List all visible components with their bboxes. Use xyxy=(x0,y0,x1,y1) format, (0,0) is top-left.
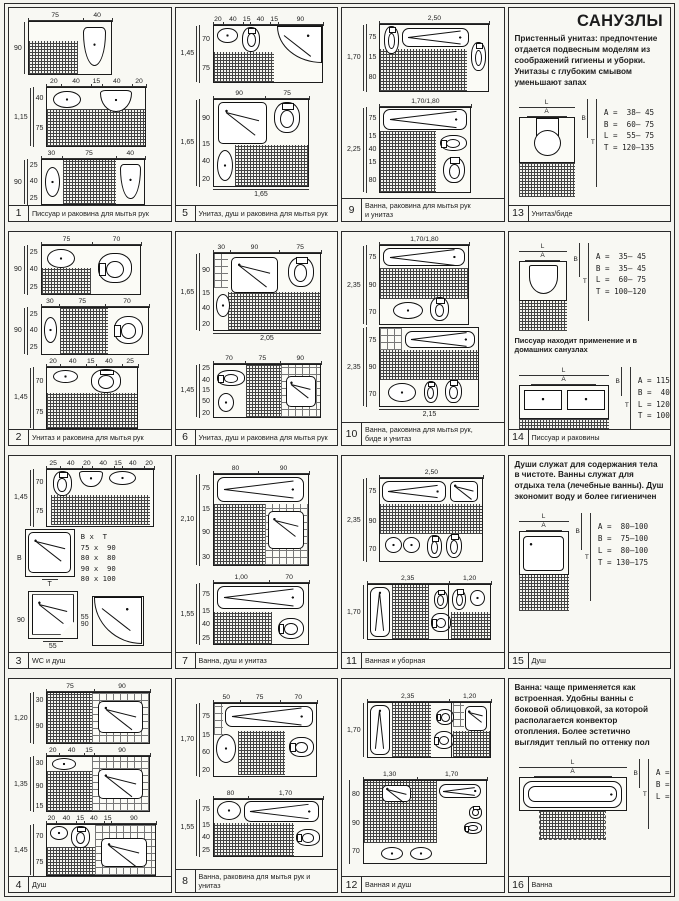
panel-caption: Унитаз/биде xyxy=(529,206,576,221)
dimension-A: A xyxy=(534,768,612,777)
tiled-floor-area xyxy=(235,145,308,186)
dimension-label: 40 xyxy=(200,151,210,173)
dimension-label: 75 xyxy=(200,799,210,821)
washbasin-icon xyxy=(53,91,80,108)
dimension-label: 90 xyxy=(14,327,22,334)
dimension-segments: 254025 xyxy=(27,245,38,295)
bathtub-icon xyxy=(217,477,304,502)
dimension-label: 90 xyxy=(14,179,22,186)
shower-icon xyxy=(382,785,411,801)
dimension-label: 15 xyxy=(243,15,251,25)
dimension-B: B xyxy=(574,243,580,277)
panel-caption: Унитаз и раковина для мытья рук xyxy=(29,430,147,445)
dimension-label: 75 xyxy=(200,474,210,504)
dimension-L: L xyxy=(519,243,567,252)
floor-plan-diagram: 2,357590702,15 xyxy=(347,327,501,419)
dimension-label: 75 xyxy=(34,110,44,147)
toilet-icon xyxy=(471,42,486,71)
dimension-total: 1,55 xyxy=(181,799,198,857)
floor-plan-room xyxy=(213,474,309,566)
dimension-label: 25 xyxy=(46,459,60,469)
plan-main: 2,351,20 xyxy=(367,692,491,758)
dimension-label: 15 xyxy=(200,820,210,830)
dimension-label: 90 xyxy=(367,506,377,537)
dimension-total: 1,70 xyxy=(347,584,364,640)
floor-plan-diagram: 1,2030907590 xyxy=(14,682,168,744)
dimension-label: 75 xyxy=(41,235,93,245)
plan-main: 2,50 xyxy=(379,14,489,92)
dimension-label: B xyxy=(574,256,578,263)
dimension-label: B xyxy=(576,528,580,535)
elevation-diagram: LABTA = 80–100 B = 75–100 L = 80–100 T =… xyxy=(519,513,665,611)
shower-icon xyxy=(450,481,479,502)
dimension-top-row: 1,301,70 xyxy=(363,770,487,780)
dimension-line xyxy=(30,693,31,743)
caption-line: Ванная и душ xyxy=(365,880,411,889)
dimension-label: 75 xyxy=(367,327,377,353)
dimension-segments: 4075 xyxy=(33,87,44,147)
floor-plan-room xyxy=(213,364,321,418)
floor-plan-diagram: 1,55751540251,0070 xyxy=(181,573,335,645)
dimension-label: 1,30 xyxy=(363,770,417,780)
washbasin-icon xyxy=(385,537,402,553)
dimension-label: 50 xyxy=(200,395,210,408)
diagram-area: 902540257570902540253075701,457075204015… xyxy=(9,232,171,429)
panel-caption-bar: 10Ванна, раковина для мытья рук,биде и у… xyxy=(342,422,504,445)
tiled-floor-area xyxy=(47,847,95,875)
floor-plan-diagram: 1,452540155020707590 xyxy=(181,354,335,418)
dimension-label: B xyxy=(582,115,586,122)
dimension-T: T xyxy=(643,759,649,829)
plan-main: 3090752,05 xyxy=(213,243,321,343)
washbasin-icon xyxy=(393,302,423,319)
floor-plan-diagram: 8090701,301,70 xyxy=(347,770,501,864)
panel-caption: Писсуар и раковины xyxy=(529,430,603,445)
floor-plan-diagram: 1,1540752040154020 xyxy=(14,77,168,147)
tiled-floor-area xyxy=(214,612,272,644)
dimension-line xyxy=(196,584,197,644)
dimension-label: 40 xyxy=(59,746,84,756)
tiled-floor-area xyxy=(451,612,490,639)
dimension-T: T xyxy=(583,243,589,321)
caption-line: Унитаз, душ и раковина для мытья рук xyxy=(199,209,328,218)
toilet-icon xyxy=(217,370,245,386)
floor-plan-diagram: 1,659015402090751,65 xyxy=(181,89,335,199)
dimension-label: 70 xyxy=(34,469,44,497)
dimension-top-row: 2,50 xyxy=(379,468,483,478)
floor-plan-room xyxy=(379,478,483,562)
shower-icon xyxy=(101,838,146,867)
dimension-label: 80 xyxy=(367,63,377,92)
dimension-top-row: 307570 xyxy=(41,297,149,307)
size-table: A = 80–100 B = 75–100 L = 80–100 T = 130… xyxy=(598,521,648,568)
diagram-area: 2,357590701,70/1,802,357590702,15 xyxy=(342,232,504,422)
dimension-label: 1,45 xyxy=(181,387,195,394)
dimension-label: 1,20 xyxy=(14,715,28,722)
floor-plan-room xyxy=(379,107,471,193)
floor-plan-room xyxy=(213,253,321,331)
toilet-icon xyxy=(278,618,304,640)
dimension-label: 40 xyxy=(61,77,91,87)
panel-10: 2,357590701,70/1,802,357590702,1510Ванна… xyxy=(341,231,505,446)
page-title: САНУЗЛЫ xyxy=(515,12,664,31)
dimension-line xyxy=(196,254,197,330)
dimension-column: 1,5575154025 xyxy=(181,789,210,857)
dimension-label: 2,35 xyxy=(347,364,361,371)
dimension-label: 1,65 xyxy=(181,289,195,296)
page-frame: 9075401,1540752040154020902540253075401П… xyxy=(4,3,675,897)
diagram-area: 1,4570752040154015901,659015402090751,65 xyxy=(176,8,338,205)
dimension-label: 2,50 xyxy=(379,468,483,478)
dimension-label: 90 xyxy=(78,621,92,628)
tiled-floor-area xyxy=(47,771,92,811)
dimension-line xyxy=(24,246,25,294)
shower-icon xyxy=(32,594,74,634)
dimension-label: 40 xyxy=(116,149,145,159)
toilet-icon xyxy=(91,369,122,393)
panel-caption: Ванная и душ xyxy=(362,877,414,892)
dimension-label: 25 xyxy=(200,364,210,374)
plan-main: 1,70/1,80 xyxy=(379,97,471,193)
dimension-label: 25 xyxy=(122,357,138,367)
dimension-label: 40 xyxy=(92,459,114,469)
washbasin-icon xyxy=(216,734,236,763)
dimension-line xyxy=(621,367,622,396)
dimension-line xyxy=(587,99,588,138)
panel-number: 5 xyxy=(176,206,196,221)
floor-plan-room xyxy=(213,25,323,83)
diagram-area: 9075401,154075204015402090254025307540 xyxy=(9,8,171,205)
dimension-segments: 75156020 xyxy=(199,703,210,777)
dimension-label: 20 xyxy=(46,814,56,824)
dimension-line xyxy=(363,25,364,91)
dimension-label: 1,70 xyxy=(347,727,361,734)
dimension-bottom: 1,65 xyxy=(213,189,309,199)
elevation-diagram: LABTA = 115–145 B = 40– 55 L = 120–175 T… xyxy=(519,367,665,429)
dimension-label: 30 xyxy=(34,756,44,771)
dimension-line xyxy=(363,703,364,757)
dimension-A: A xyxy=(526,522,562,531)
dimension-label: 90 xyxy=(230,243,280,253)
dimension-label: 15 xyxy=(86,357,96,367)
panel-3: 1,45707525402040154020BTB x T 75 x 90 80… xyxy=(8,455,172,670)
plan-main: 307570 xyxy=(41,297,149,355)
panel-number: 7 xyxy=(176,653,196,668)
tile-grid-area xyxy=(214,254,228,287)
dimension-label: 15 xyxy=(200,288,210,300)
dimension-label: 70 xyxy=(34,367,44,397)
dimension-line xyxy=(30,368,31,428)
dimension-B: B xyxy=(634,759,640,788)
plan-main: 90751,65 xyxy=(213,89,309,199)
washbasin-icon xyxy=(218,393,234,412)
floor-plan-diagram: 907540 xyxy=(14,11,168,75)
dimension-total: 1,20 xyxy=(14,692,31,744)
dimension-label: 75 xyxy=(200,583,210,606)
dimension-total: 1,15 xyxy=(14,87,31,147)
dimension-label: 15 xyxy=(200,139,210,151)
plan-main: 2,50 xyxy=(379,468,483,562)
panel-number: 13 xyxy=(509,206,529,221)
dimension-label: 40 xyxy=(60,357,86,367)
dimension-label: 25 xyxy=(200,845,210,857)
toilet-icon xyxy=(464,822,482,833)
floor-plan-diagram: 90254025307540 xyxy=(14,149,168,205)
dimension-label: 1,70 xyxy=(181,736,195,743)
plan-main: 507570 xyxy=(213,693,317,777)
panel-5: 1,4570752040154015901,659015402090751,65… xyxy=(175,7,339,222)
panel-caption-bar: 9Ванна, раковина для мытья руки унитаз xyxy=(342,198,504,221)
dimension-line xyxy=(590,513,591,601)
panel-number: 11 xyxy=(342,653,362,668)
panel-13: САНУЗЛЫПристенный унитаз: предпочтение о… xyxy=(508,7,672,222)
dimension-total: 1,45 xyxy=(181,364,198,418)
toilet-icon xyxy=(71,826,89,848)
floor-plan-room xyxy=(379,245,469,325)
panel-7: 2,107515903080901,55751540251,00707Ванна… xyxy=(175,455,339,670)
tile-grid-area xyxy=(214,704,223,736)
dimension-label: 70 xyxy=(367,537,377,563)
floor-plan-diagram: 902540257570 xyxy=(14,235,168,295)
dimension-L: L xyxy=(519,513,569,522)
tiled-floor-area xyxy=(519,163,575,197)
dimension-label: 20 xyxy=(200,408,210,418)
dimension-line xyxy=(581,513,582,550)
dimension-label: 90 xyxy=(258,464,309,474)
plan-main: 1,301,70 xyxy=(363,770,487,864)
floor-plan-diagram: 2,10751590308090 xyxy=(181,464,335,566)
floor-plan-diagram: 1,65901540203090752,05 xyxy=(181,243,335,343)
floor-plan-diagram: 2,357590702,50 xyxy=(347,468,501,562)
dimension-label: 40 xyxy=(28,321,38,340)
floor-plan-room xyxy=(46,469,154,527)
dimension-line xyxy=(30,825,31,875)
panel-number: 2 xyxy=(9,430,29,445)
dimension-label: 40 xyxy=(223,15,243,25)
dimension-label: 70 xyxy=(280,693,317,703)
size-table: B x T 75 x 90 80 x 80 90 x 90 80 x 100 xyxy=(81,532,116,585)
dimension-top-row: 2,351,20 xyxy=(367,692,491,702)
caption-line: Писсуар и раковины xyxy=(532,433,600,442)
plan-main: 25402040154020 xyxy=(46,459,154,527)
caption-line: Унитаз и раковина для мытья рук xyxy=(32,433,144,442)
floor-plan-diagram: 2,2575154015801,70/1,80 xyxy=(347,97,501,193)
dimension-total: 1,35 xyxy=(14,756,31,812)
dimension-total: 1,45 xyxy=(181,25,198,83)
diagram-area: 1,707515802,502,2575154015801,70/1,80 xyxy=(342,8,504,198)
dimension-B: B xyxy=(576,513,582,550)
caption-line: Унитаз/биде xyxy=(532,209,573,218)
toilet-icon xyxy=(469,806,482,819)
washbasin-icon xyxy=(45,167,60,197)
dimension-line xyxy=(363,328,364,406)
toilet-icon xyxy=(288,257,313,287)
dimension-top-row: 204015401590 xyxy=(213,15,323,25)
dimension-segments: 309015 xyxy=(33,756,44,812)
floor-plan-room xyxy=(46,756,150,812)
panel-caption: Ванна, раковина для мытья руки унитаз xyxy=(362,199,474,221)
sinks-front-icon xyxy=(519,385,609,419)
washbasin-icon xyxy=(403,537,420,553)
dimension-label: T xyxy=(585,554,589,561)
tiled-floor-area xyxy=(47,393,137,428)
shower-icon xyxy=(98,769,143,799)
plan-main: 1,0070 xyxy=(213,573,309,645)
panel-caption: WC и душ xyxy=(29,653,69,668)
dimension-label: 1,45 xyxy=(14,394,28,401)
dimension-label: 1,70 xyxy=(347,54,361,61)
panel-12: 1,702,351,208090701,301,7012Ванная и душ xyxy=(341,678,505,893)
dimension-label: 20 xyxy=(200,764,210,776)
dimension-label: 90 xyxy=(14,266,22,273)
dimension-top-row: 20401590 xyxy=(46,746,150,756)
dimension-T: T xyxy=(625,367,631,429)
dimension-segments: 254025 xyxy=(27,159,38,205)
panel-14: LABTA = 35– 45 B = 35– 45 L = 60– 75 T =… xyxy=(508,231,672,446)
dimension-label: 40 xyxy=(200,830,210,845)
dimension-label: 25 xyxy=(28,340,38,355)
tiled-floor-area xyxy=(29,41,78,74)
dimension-label: 15 xyxy=(367,157,377,167)
dimension-B: B xyxy=(582,99,588,138)
dimension-segments: 7075 xyxy=(199,25,210,83)
dimension-label: 20 xyxy=(132,77,147,87)
dimension-label: 70 xyxy=(92,235,140,245)
dimension-total: 1,70 xyxy=(181,703,198,777)
panel-caption: Унитаз, душ и раковина для мытья рук xyxy=(196,206,331,221)
shower-icon xyxy=(231,257,278,293)
panel-11: 2,357590702,501,702,351,2011Ванная и убо… xyxy=(341,455,505,670)
dimension-column: 1,457075 xyxy=(14,459,43,527)
dimension-segments: 7075 xyxy=(33,824,44,876)
dimension-segments: 759070 xyxy=(366,478,377,562)
dimension-L: L xyxy=(519,99,575,108)
dimension-column: 1,6590154020 xyxy=(181,243,210,331)
dimension-L: L xyxy=(519,759,627,768)
dimension-top-row: 2040154025 xyxy=(46,357,138,367)
panel-caption-bar: 8Ванна, раковина для мытья рук и унитаз xyxy=(176,869,338,892)
dimension-column: 1,70 xyxy=(347,692,364,758)
dimension-label: 40 xyxy=(28,260,38,280)
panel-number: 14 xyxy=(509,430,529,445)
dimension-label: 75 xyxy=(367,245,377,271)
dimension-label: 90 xyxy=(278,15,323,25)
panel-15: Души служат для содержания тела в чистот… xyxy=(508,455,672,670)
tiled-floor-area xyxy=(214,823,294,855)
dimension-label: 1,65 xyxy=(181,139,195,146)
panel-caption-bar: 15Душ xyxy=(509,652,671,668)
dimension-label: 20 xyxy=(200,173,210,187)
dimension-label: 15 xyxy=(34,801,44,812)
dimension-total: 2,10 xyxy=(181,474,198,566)
panel-caption: Ванна, раковина для мытья рук,биде и уни… xyxy=(362,423,476,445)
dimension-A: A xyxy=(525,252,560,261)
panel-number: 15 xyxy=(509,653,529,668)
plan-main: 707590 xyxy=(213,354,321,418)
dimension-top-row: 1,70/1,80 xyxy=(379,97,471,107)
dimension-line xyxy=(24,160,25,204)
dimension-label: 2,50 xyxy=(379,14,489,24)
urinal-icon xyxy=(83,27,106,65)
dimension-segments: 7075 xyxy=(33,367,44,429)
dimension-label: 70 xyxy=(200,25,210,53)
dimension-label: 15 xyxy=(200,386,210,395)
tiled-floor-area xyxy=(380,504,482,534)
panel-1: 9075401,1540752040154020902540253075401П… xyxy=(8,7,172,222)
size-table: A = 38– 45 B = 60– 75 L = 55– 75 T = 120… xyxy=(604,107,654,154)
dimension-label: 2,35 xyxy=(347,517,361,524)
floor-plan-room xyxy=(367,584,491,640)
dimension-right: BT xyxy=(613,367,631,429)
panel-number: 1 xyxy=(9,206,29,221)
dimension-label: 25 xyxy=(28,280,38,295)
panel-caption-bar: 7Ванна, душ и унитаз xyxy=(176,652,338,668)
dimension-line xyxy=(363,585,364,639)
floor-plan-room xyxy=(46,692,150,744)
corner-showers-diagram: 90555590 xyxy=(14,591,168,651)
elevation-plan: LA xyxy=(519,367,609,429)
dimension-line xyxy=(596,99,597,187)
dimension-label: 1,15 xyxy=(14,114,28,121)
dimension-label: 75 xyxy=(28,11,83,21)
dimension-top-row: 2040154020 xyxy=(46,77,146,87)
dimension-label: 55 xyxy=(78,614,92,621)
dimension-right: BT xyxy=(573,513,591,601)
dimension-label: 75 xyxy=(34,497,44,527)
bathtub-icon xyxy=(244,801,319,821)
panel-caption-bar: 2Унитаз и раковина для мытья рук xyxy=(9,429,171,445)
floor-plan-room xyxy=(41,245,141,295)
tiled-floor-area xyxy=(47,109,145,146)
panel-8: 1,70751560205075701,5575154025801,708Ван… xyxy=(175,678,339,893)
panel-4: 1,20309075901,35309015204015901,45707520… xyxy=(8,678,172,893)
dimension-label: T xyxy=(583,278,587,285)
dimension-label: 30 xyxy=(41,149,63,159)
dimension-label: 50 xyxy=(213,693,240,703)
dimension-segments: 254025 xyxy=(27,307,38,355)
washbasin-icon xyxy=(217,150,233,181)
dimension-label: 1,35 xyxy=(14,781,28,788)
dimension-label: 90 xyxy=(14,617,28,624)
dimension-label: 75 xyxy=(240,693,280,703)
text-content: Души служат для содержания тела в чистот… xyxy=(509,456,671,653)
floor-plan-diagram: 2,357590701,70/1,80 xyxy=(347,235,501,325)
dimension-label: 75 xyxy=(34,850,44,876)
dimension-label: 40 xyxy=(28,173,38,191)
plan-main: 2,351,20 xyxy=(367,574,491,640)
floor-plan-room xyxy=(28,591,78,639)
dimension-label: 80 xyxy=(213,464,258,474)
dimension-line xyxy=(630,367,631,429)
dimension-line xyxy=(639,759,640,788)
caption-line: Ванна, душ и унитаз xyxy=(199,656,267,665)
dimension-top-row: 8090 xyxy=(213,464,309,474)
plan-main: 20401590 xyxy=(46,746,150,812)
dimension-line xyxy=(648,759,649,829)
toilet-icon xyxy=(274,102,300,133)
elevation-plan: LA xyxy=(519,759,627,839)
dimension-label: 15 xyxy=(367,52,377,63)
dimension-column: 2,35759070 xyxy=(347,327,376,407)
bathtub-icon xyxy=(370,705,390,755)
dimension-total: 90 xyxy=(14,245,25,295)
plan-main: 2,15 xyxy=(379,327,479,419)
dimension-label: 1,20 xyxy=(449,574,491,584)
shower-icon xyxy=(286,376,316,406)
dimension-line xyxy=(196,800,197,856)
dimension-label: 75 xyxy=(367,24,377,52)
dimension-column: 2,1075159030 xyxy=(181,464,210,566)
